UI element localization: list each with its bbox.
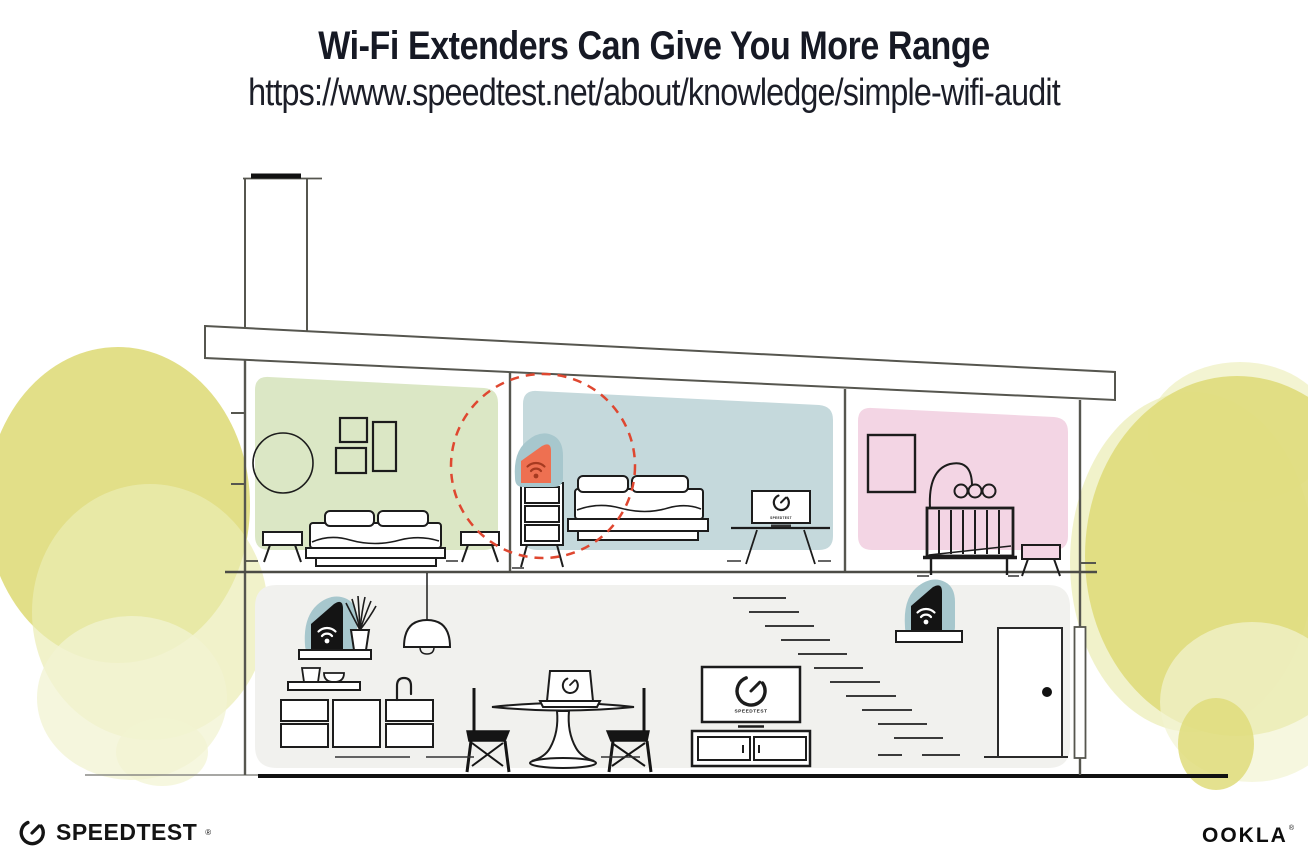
ookla-wordmark: OOKLA: [1202, 824, 1288, 848]
upstairs-tv-label: SPEEDTEST: [770, 516, 792, 520]
chimney: [243, 176, 322, 331]
shelf-board: [288, 682, 360, 690]
left-tree: [0, 347, 268, 786]
tv-label: SPEEDTEST: [734, 709, 767, 715]
ookla-logo: OOKLA ®: [1202, 824, 1294, 848]
speedtest-wordmark: SPEEDTEST: [56, 819, 197, 846]
shelf-board: [896, 631, 962, 642]
ground-line: [85, 775, 1228, 776]
house-illustration: SPEEDTEST: [0, 0, 1308, 861]
speedtest-logo: SPEEDTEST ®: [16, 816, 211, 848]
shelf-board: [299, 650, 371, 659]
floor-marks: [512, 561, 831, 568]
door-knob: [1042, 687, 1052, 697]
sidelight-window: [1075, 627, 1086, 758]
page: Wi-Fi Extenders Can Give You More Range …: [0, 0, 1308, 861]
dresser: [521, 483, 563, 567]
living-room-tv: SPEEDTEST: [702, 667, 800, 727]
kitchen-cabinets: [281, 700, 433, 747]
bed: [568, 476, 708, 540]
wifi-extender-upstairs: [515, 433, 563, 487]
laptop: [540, 671, 600, 707]
speedtest-gauge-icon: [16, 816, 48, 848]
right-tree: [1070, 362, 1308, 790]
speedtest-registered-mark: ®: [205, 828, 211, 837]
ookla-registered-mark: ®: [1289, 825, 1294, 832]
media-console: [692, 731, 810, 766]
